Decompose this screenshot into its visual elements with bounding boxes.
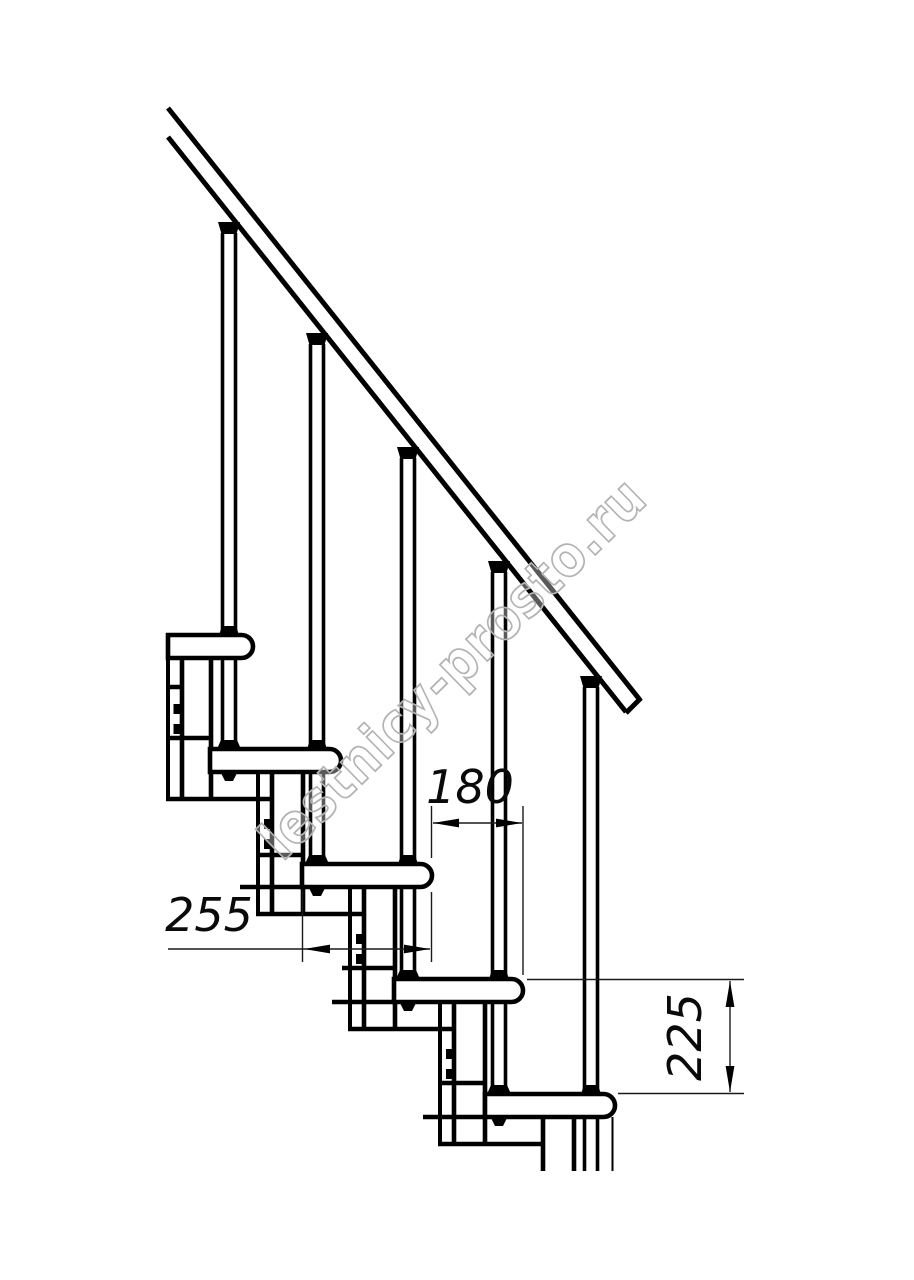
tread-5 (485, 1094, 615, 1117)
dim-label-255: 255 (165, 888, 253, 942)
technical-drawing-canvas: 180 255 225 lestnicy-prosto.ru (0, 0, 914, 1280)
staircase-drawing: 180 255 225 lestnicy-prosto.ru (0, 0, 914, 1280)
support-module-5 (543, 1117, 613, 1171)
arrow-left-icon (304, 945, 330, 954)
baluster-foot-icon (396, 970, 420, 979)
clip-icon (446, 1049, 455, 1059)
clip-icon (174, 704, 183, 714)
under-tread-clip-icon (491, 1118, 507, 1126)
tread-collar-icon (581, 1085, 601, 1094)
support-module-3 (342, 887, 454, 1029)
dimension-tread-depth: 255 (165, 888, 430, 962)
under-tread-clip-icon (400, 1003, 416, 1011)
dim-label-225: 225 (658, 993, 712, 1081)
dimension-step-rise: 225 (527, 980, 744, 1094)
under-tread-clip-icon (221, 773, 237, 781)
under-tread-clip-icon (309, 888, 325, 896)
baluster-foot-icon (217, 740, 241, 749)
arrow-up-icon (726, 981, 735, 1007)
tread-collar-icon (489, 970, 509, 979)
arrow-left-icon (433, 819, 459, 828)
handrail-end-cap (626, 698, 641, 713)
arrow-right-icon (404, 945, 430, 954)
tread-4 (394, 979, 523, 1002)
clip-icon (446, 1069, 455, 1079)
handrail (168, 108, 641, 713)
clip-icon (356, 934, 365, 944)
tread-collar-icon (307, 740, 327, 749)
tread-collar-icon (219, 626, 239, 635)
support-module-4 (438, 1002, 543, 1144)
dimension-step-run: 180 (426, 760, 523, 975)
arrow-right-icon (496, 819, 522, 828)
arrow-down-icon (726, 1066, 735, 1092)
dim-label-180: 180 (426, 760, 514, 814)
baluster-1 (218, 222, 240, 741)
baluster-foot-icon (487, 1085, 511, 1094)
clip-icon (356, 954, 365, 964)
tread-collar-icon (398, 855, 418, 864)
tread-3 (302, 864, 432, 887)
clip-icon (174, 724, 183, 734)
tread-1 (168, 635, 253, 658)
baluster-foot-icon (305, 855, 329, 864)
